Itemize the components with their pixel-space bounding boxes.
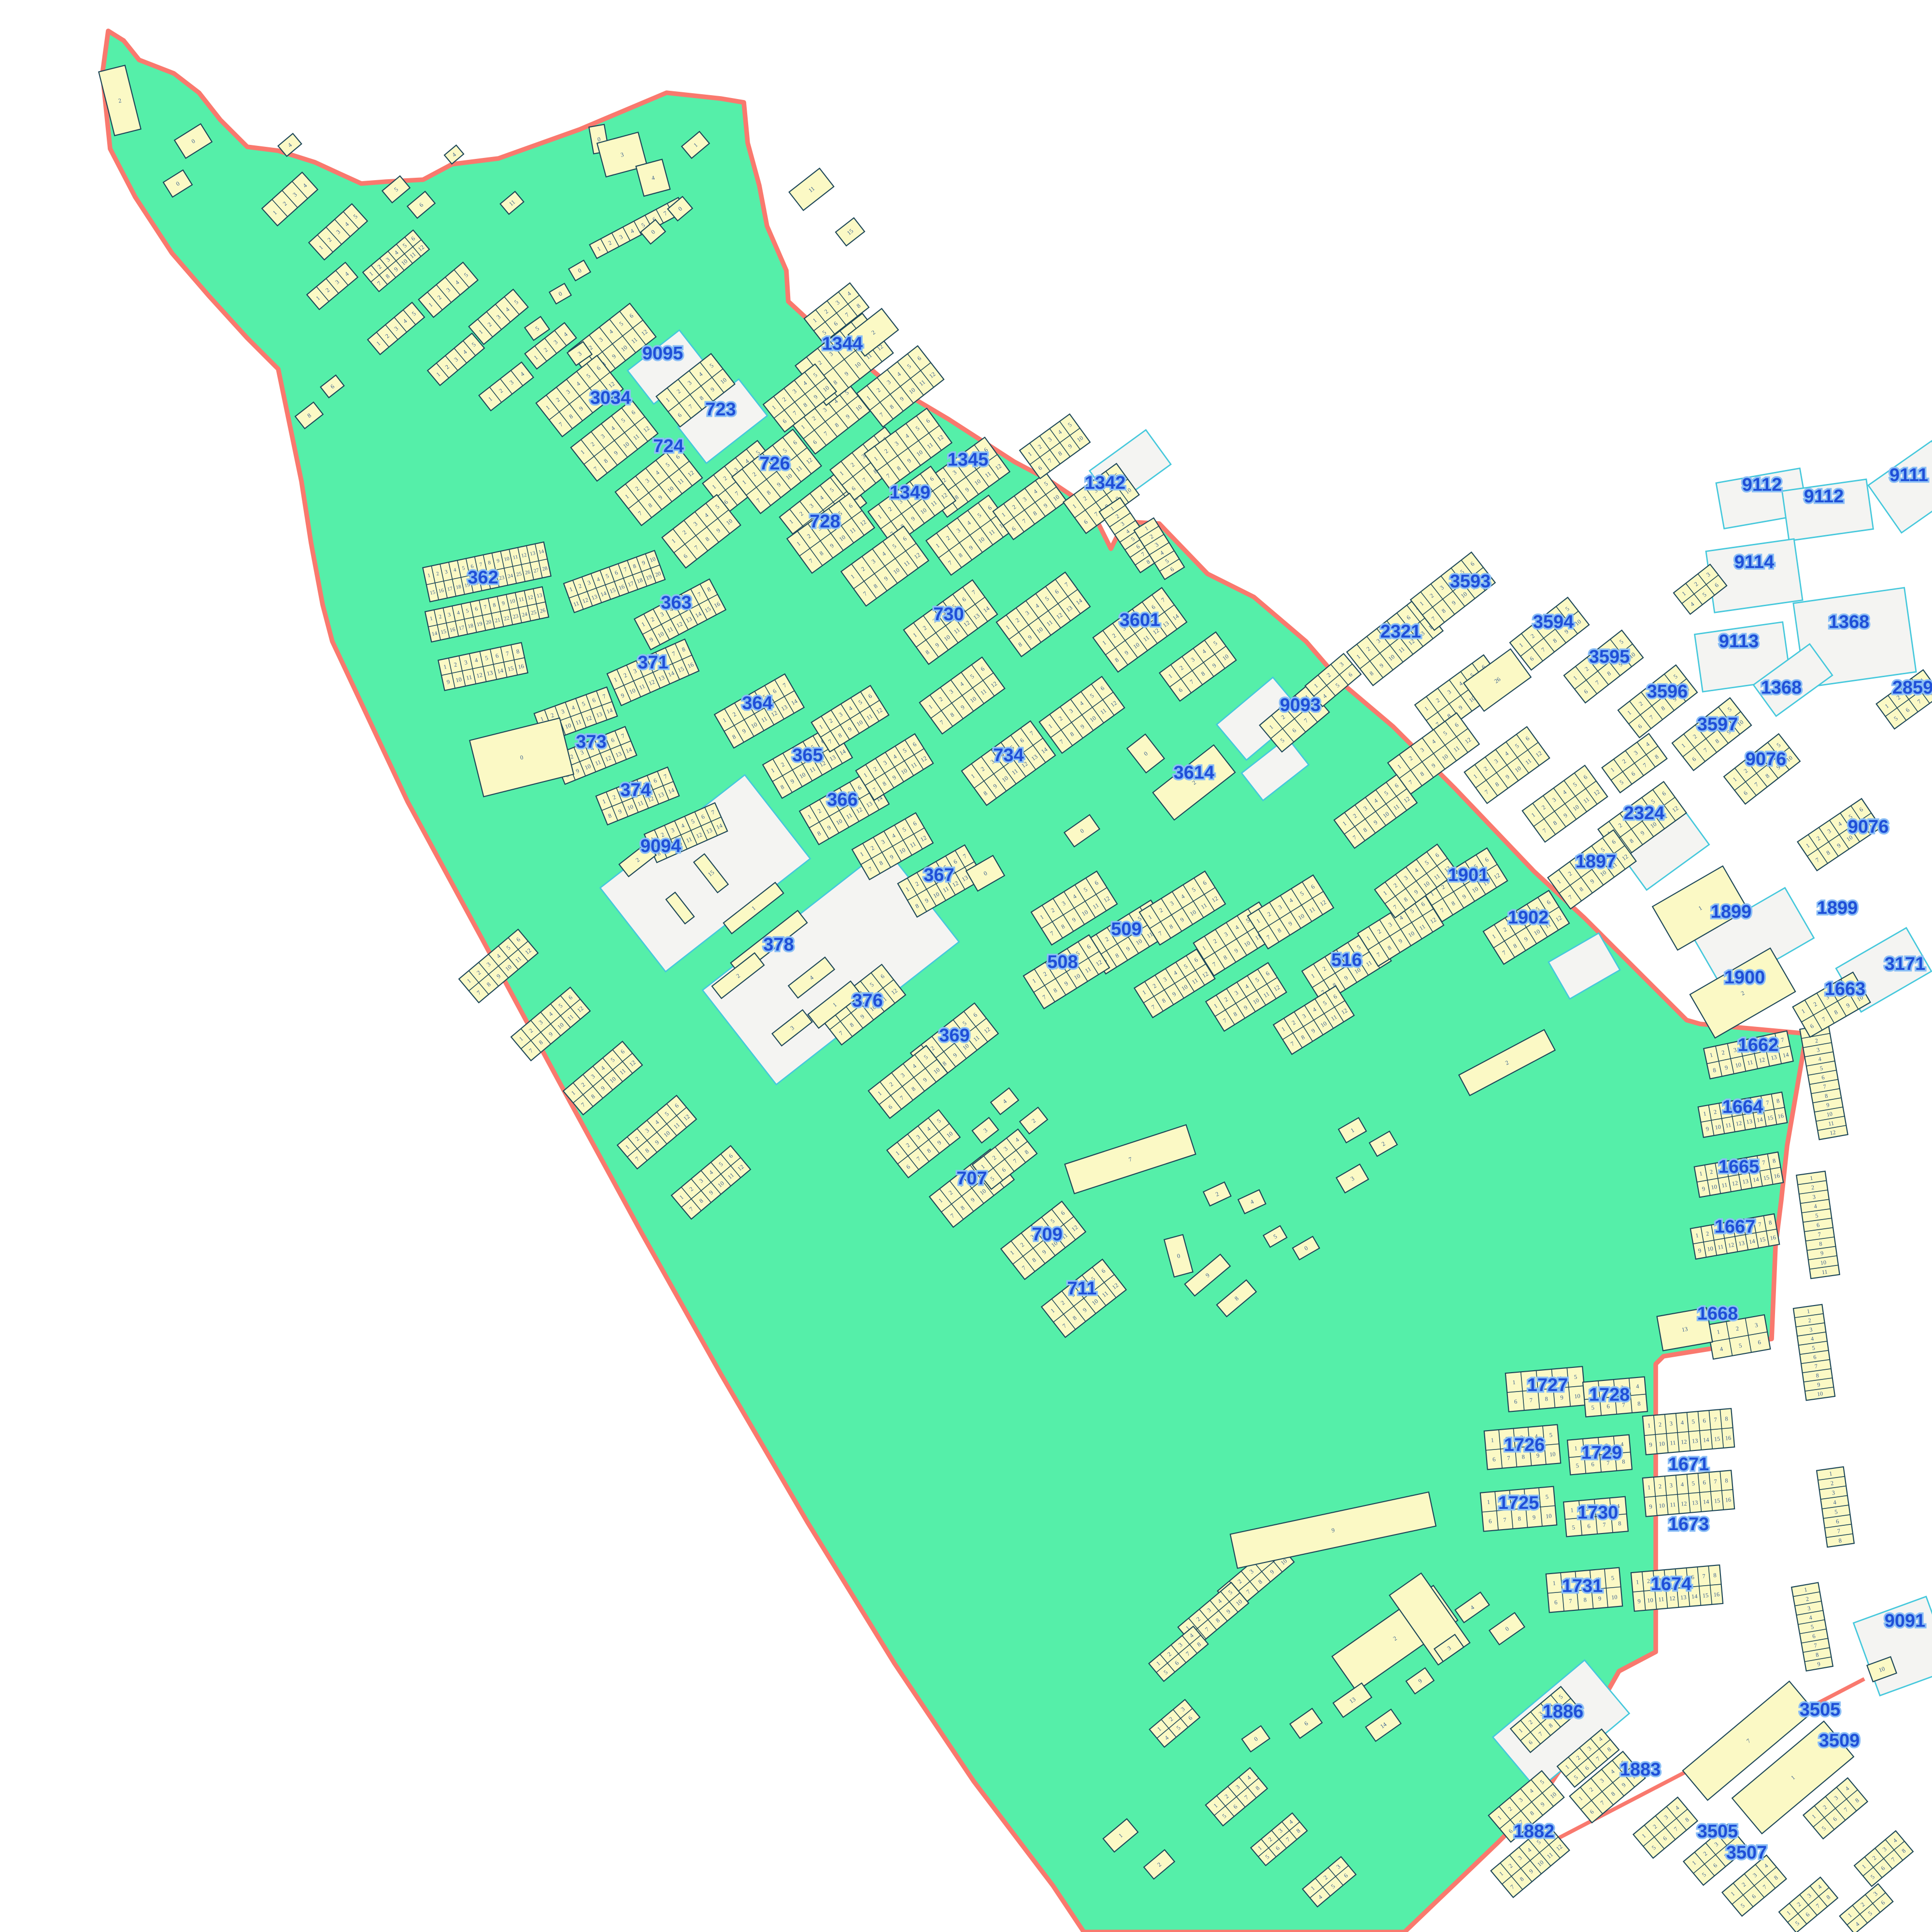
parcel-block[interactable]: 123456 [1840,1884,1893,1932]
block-label[interactable]: 9091 [1885,1611,1926,1631]
map-canvas[interactable]: 1234123451234567891011121234512345123412… [0,0,1932,1932]
block-label[interactable]: 3601 [1120,610,1161,630]
parcel-number: 10 [1706,1245,1714,1253]
parcel-number: 15 [1767,1114,1774,1122]
parcel-number: 10 [1549,1450,1556,1458]
parcel-number: 12 [1681,1500,1688,1507]
parcel-number: 23 [512,613,519,620]
parcel-number: 13 [1681,1325,1689,1333]
block-label[interactable]: 9112 [1742,475,1782,495]
parcel-block[interactable]: 123456789101112 [1800,1024,1847,1140]
parcel-block[interactable]: 12345678910111213141516 [1643,1408,1734,1455]
parcel-number: 5 [1545,1493,1548,1500]
parcel-number: 5 [1549,1432,1552,1438]
block-label[interactable]: 516 [1331,950,1362,970]
parcel-block[interactable]: 12345678910 [1510,597,1589,670]
block-label[interactable]: 362 [468,568,498,588]
block-label[interactable]: 1727 [1527,1375,1568,1395]
parcel-number: 10 [1659,1440,1665,1448]
parcel-block[interactable]: 1234567891011 [1796,1171,1839,1279]
block-label[interactable]: 1671 [1668,1454,1709,1475]
parcel[interactable]: 15 [836,218,865,246]
block-label[interactable]: 3597 [1697,714,1738,735]
parcel-block[interactable]: 12345678 [1779,1877,1838,1932]
parcel-number: 21 [494,617,501,624]
parcel-number: 12 [1829,1129,1836,1136]
parcel-number: 13 [536,592,543,599]
block-label[interactable]: 3596 [1647,682,1688,702]
block-label[interactable]: 9094 [640,836,682,856]
block-label[interactable]: 9114 [1734,552,1774,572]
block-label[interactable]: 1663 [1825,979,1866,999]
parcel-number: 10 [1611,1593,1618,1601]
parcel-number: 5 [1572,1524,1575,1531]
block-label[interactable]: 3595 [1589,647,1630,667]
parcel-number: 25 [530,610,537,616]
parcel-block[interactable]: 12345678 [1722,1855,1786,1916]
block-label[interactable]: 9093 [1280,695,1321,715]
block-label[interactable]: 723 [705,399,736,420]
parcel-block[interactable]: 12345678 [1633,1797,1697,1858]
parcel-number: 1 [1552,1579,1556,1586]
parcel-block[interactable]: 123456789 [1791,1582,1833,1671]
parcel-number: 16 [449,626,456,633]
parcel-number: 8 [1725,1477,1728,1484]
parcel-number: 15 [440,628,447,635]
parcel-number: 5 [1691,1418,1695,1425]
parcel-number: 10 [1817,1390,1823,1398]
block-label[interactable]: 734 [993,745,1023,766]
parcel-number: 13 [1680,1594,1687,1601]
parcel-number: 6 [1703,1479,1706,1486]
parcel-number: 10 [1710,1183,1718,1191]
parcel-number: 1 [1574,1445,1577,1451]
block-label[interactable]: 1368 [1761,678,1802,698]
block-label[interactable]: 724 [653,436,683,456]
parcel-number: 4 [1680,1481,1684,1488]
block-label[interactable]: 378 [763,935,794,955]
parcel-number: 6 [1587,1522,1591,1529]
parcel-number: 15 [1714,1497,1720,1505]
parcel-number: 8 [1637,1400,1641,1407]
block-label[interactable]: 1728 [1589,1385,1630,1405]
block-label[interactable]: 1667 [1715,1217,1756,1237]
block-label[interactable]: 728 [810,511,840,532]
parcel-number: 11 [1821,1268,1828,1276]
parcel-number: 2 [1647,1577,1650,1584]
parcel-number: 6 [1492,1456,1496,1463]
parcel-number: 6 [1554,1599,1558,1605]
block-label[interactable]: 1729 [1581,1443,1622,1463]
block-label[interactable]: 1345 [948,450,989,470]
parcel-number: 8 [1622,1458,1625,1465]
parcel-number: 11 [1670,1439,1676,1447]
block-label[interactable]: 730 [933,604,964,625]
parcel-number: 3 [1669,1482,1673,1489]
parcel-number: 15 [507,665,514,672]
parcel-number: 10 [1659,1502,1665,1509]
parcel-number: 12 [476,671,483,679]
vacant-parcel[interactable] [1868,441,1932,533]
parcel-number: 16 [517,663,525,670]
parcel-number: 19 [476,621,483,627]
parcel-number: 16 [1769,1234,1776,1242]
parcel-number: 11 [1828,1120,1834,1127]
parcel-number: 14 [1691,1593,1698,1600]
block-label[interactable]: 1883 [1620,1760,1661,1780]
block-label[interactable]: 711 [1067,1279,1096,1299]
parcel-number: 13 [1691,1499,1698,1506]
parcel-number: 3 [1669,1420,1673,1427]
parcel-number: 26 [540,608,546,614]
parcel-number: 12 [1758,1056,1765,1064]
parcel-number: 1 [1647,1484,1650,1491]
block-label[interactable]: 365 [792,745,823,766]
parcel-number: 12 [1735,1120,1743,1127]
block-label[interactable]: 3594 [1533,612,1574,632]
parcel-number: 14 [1782,1051,1790,1059]
parcel-number: 1 [1570,1506,1574,1513]
parcel-number: 13 [486,669,494,677]
parcel-number: 10 [1574,1392,1581,1400]
parcel-number: 10 [1734,1061,1742,1069]
parcel-number: 10 [509,598,516,605]
block-label[interactable]: 1344 [822,334,863,354]
parcel-number: 9 [1532,1514,1535,1520]
block-label[interactable]: 1901 [1448,865,1489,885]
parcel-number: 11 [1658,1596,1664,1603]
block-label[interactable]: 364 [742,693,772,713]
parcel-number: 1 [1512,1379,1516,1386]
parcel-number: 2 [1658,1483,1662,1490]
block-label[interactable]: 1731 [1562,1576,1603,1596]
block-label[interactable]: 509 [1111,919,1141,939]
parcel-number: 14 [1703,1498,1709,1506]
parcel-number: 15 [1763,1174,1770,1182]
parcel-number: 7 [1714,1416,1717,1423]
block-label[interactable]: 371 [638,653,668,673]
block-label[interactable]: 3507 [1726,1843,1767,1863]
parcel-number: 14 [497,667,504,675]
parcel-number: 1 [1647,1422,1650,1429]
parcel-number: 13 [1738,1239,1745,1247]
block-label[interactable]: 374 [620,780,651,800]
block-label[interactable]: 1368 [1829,612,1870,632]
parcel-number: 24 [521,611,528,618]
block-label[interactable]: 1726 [1504,1435,1545,1455]
block-label[interactable]: 1899 [1817,898,1858,918]
block-label[interactable]: 9111 [1889,465,1928,485]
block-label[interactable]: 376 [852,991,882,1011]
block-label[interactable]: 1725 [1498,1493,1539,1513]
block-label[interactable]: 369 [939,1025,969,1046]
parcel-number: 17 [458,625,465,631]
parcel-number: 1 [1491,1436,1494,1443]
parcel-number: 15 [1714,1435,1720,1443]
parcel-number: 7 [1507,1455,1510,1462]
parcel-number: 7 [1702,1573,1705,1579]
parcel-number: 13 [1742,1178,1749,1185]
parcel-number: 11 [512,554,519,561]
block-label[interactable]: 3505 [1697,1821,1738,1842]
parcel-number: 4 [1680,1419,1684,1426]
block-label[interactable]: 726 [759,454,790,474]
parcel-number: 5 [1574,1374,1577,1380]
block-label[interactable]: 367 [923,865,954,885]
parcel-number: 10 [1546,1512,1552,1520]
parcel-number: 13 [1691,1437,1698,1445]
block-label[interactable]: 9076 [1848,817,1889,837]
block-label[interactable]: 9095 [642,343,683,364]
parcel-number: 11 [1747,1059,1754,1066]
parcel-number: 11 [1721,1181,1728,1189]
parcel-number: 14 [1748,1237,1756,1245]
block-label[interactable]: 1886 [1543,1702,1584,1722]
parcel-number: 6 [1703,1417,1706,1424]
block-label[interactable]: 508 [1047,952,1078,972]
parcel-number: 5 [1576,1462,1579,1469]
block-label[interactable]: 1897 [1576,852,1617,872]
parcel-number: 6 [1489,1518,1492,1524]
block-label[interactable]: 3505 [1800,1700,1841,1720]
parcel-number: 1 [1635,1578,1639,1585]
parcel-number: 16 [1713,1591,1720,1598]
parcel-block[interactable]: 12345678 [1602,734,1667,793]
parcel-number: 16 [1777,1112,1784,1120]
parcel-number: 18 [467,623,474,629]
parcel-number: 16 [1725,1496,1732,1504]
block-label[interactable]: 709 [1032,1224,1062,1245]
parcel-number: 9 [1649,1503,1652,1510]
parcel-number: 16 [1725,1435,1732,1442]
parcel-number: 9 [1649,1441,1652,1448]
block-label[interactable]: 2324 [1624,803,1665,824]
block-label[interactable]: 366 [827,790,857,810]
block-label[interactable]: 1673 [1668,1514,1709,1534]
block-label[interactable]: 9113 [1719,631,1759,652]
block-label[interactable]: 1664 [1722,1097,1763,1117]
parcel-number: 12 [527,594,534,601]
block-label[interactable]: 3509 [1819,1731,1860,1751]
parcel-number: 7 [1503,1517,1506,1523]
block-label[interactable]: 3614 [1174,763,1215,783]
parcel-number: 8 [1725,1415,1728,1422]
block-label[interactable]: 1342 [1085,473,1126,493]
block-label[interactable]: 1674 [1651,1574,1692,1594]
parcel-number: 7 [1529,1397,1533,1404]
parcel-number: 6 [1514,1398,1517,1405]
parcel-number: 12 [1681,1438,1688,1446]
block-label[interactable]: 2321 [1380,622,1421,642]
parcel-number: 8 [1545,1395,1548,1402]
parcel-number: 2 [1658,1421,1662,1428]
parcel-number: 7 [1714,1478,1717,1485]
parcel-number: 4 [1636,1383,1639,1390]
block-label[interactable]: 3593 [1450,571,1491,592]
parcel-number: 12 [1732,1179,1739,1187]
parcel-number: 11 [1670,1501,1676,1508]
cadastral-map[interactable]: 1234123451234567891011121234512345123412… [0,0,1932,1932]
parcel-block[interactable]: 12345678 [1817,1467,1854,1547]
block-label[interactable]: 1665 [1719,1157,1760,1177]
parcel-number: 10 [1647,1597,1654,1604]
block-label[interactable]: 1349 [890,483,931,503]
parcel-number: 8 [1618,1520,1621,1527]
parcel-block[interactable]: 12345678910111213141516 [1643,1470,1734,1517]
block-label[interactable]: 1902 [1508,908,1549,928]
block-label[interactable]: 373 [576,732,606,752]
block-label[interactable]: 9076 [1746,749,1787,769]
parcel-number: 11 [466,674,473,682]
parcel-number: 8 [1713,1572,1717,1578]
parcel-number: 11 [1725,1122,1732,1129]
parcel-number: 10 [1826,1110,1833,1118]
parcel-number: 5 [1591,1404,1594,1411]
parcel-number: 12 [521,552,527,559]
parcel-number: 7 [1569,1598,1572,1605]
block-label[interactable]: 2859 [1892,678,1932,698]
parcel-number: 20 [485,619,492,626]
parcel-number: 10 [455,676,462,683]
block-label[interactable]: 1899 [1711,902,1752,922]
parcel-number: 5 [1611,1575,1614,1581]
parcel-number: 15 [1702,1592,1709,1599]
parcel-number: 12 [1669,1595,1676,1602]
parcel-number: 15 [1759,1236,1766,1244]
block-label[interactable]: 363 [661,593,691,613]
block-label[interactable]: 1900 [1724,967,1765,988]
block-label[interactable]: 3171 [1885,954,1926,974]
parcel-block[interactable]: 123456789101112 [1522,766,1607,842]
parcel-block[interactable]: 12345678 [1854,1831,1913,1887]
parcel-number: 12 [1728,1241,1735,1249]
block-label[interactable]: 707 [956,1168,987,1189]
parcel-number: 10 [1820,1259,1827,1266]
parcel-number: 10 [1714,1123,1721,1131]
district-boundary[interactable] [102,31,1806,1932]
parcel-number: 14 [1703,1436,1709,1444]
parcel-number: 1 [1487,1498,1490,1505]
parcel-number: 9 [1637,1598,1641,1605]
parcel-number: 11 [1717,1243,1724,1251]
parcel-number: 13 [1746,1118,1753,1125]
parcel-block[interactable]: 123456789101112 [1464,727,1549,804]
parcel-number: 5 [1691,1480,1695,1487]
block-label[interactable]: 1730 [1577,1503,1619,1523]
parcel-number: 16 [1773,1172,1780,1180]
parcel-number: 8 [1518,1515,1521,1522]
parcel-number: 8 [1583,1596,1587,1603]
block-label[interactable]: 3034 [590,388,631,408]
vacant-parcel[interactable] [1706,539,1803,612]
parcel-number: 14 [431,630,438,637]
parcel-block[interactable]: 12345678910 [1793,1305,1835,1400]
block-label[interactable]: 9112 [1804,486,1844,507]
block-label[interactable]: 1668 [1697,1304,1738,1324]
parcel[interactable]: 11 [789,168,834,210]
block-label[interactable]: 1882 [1514,1821,1555,1842]
block-label[interactable]: 1662 [1738,1035,1779,1055]
